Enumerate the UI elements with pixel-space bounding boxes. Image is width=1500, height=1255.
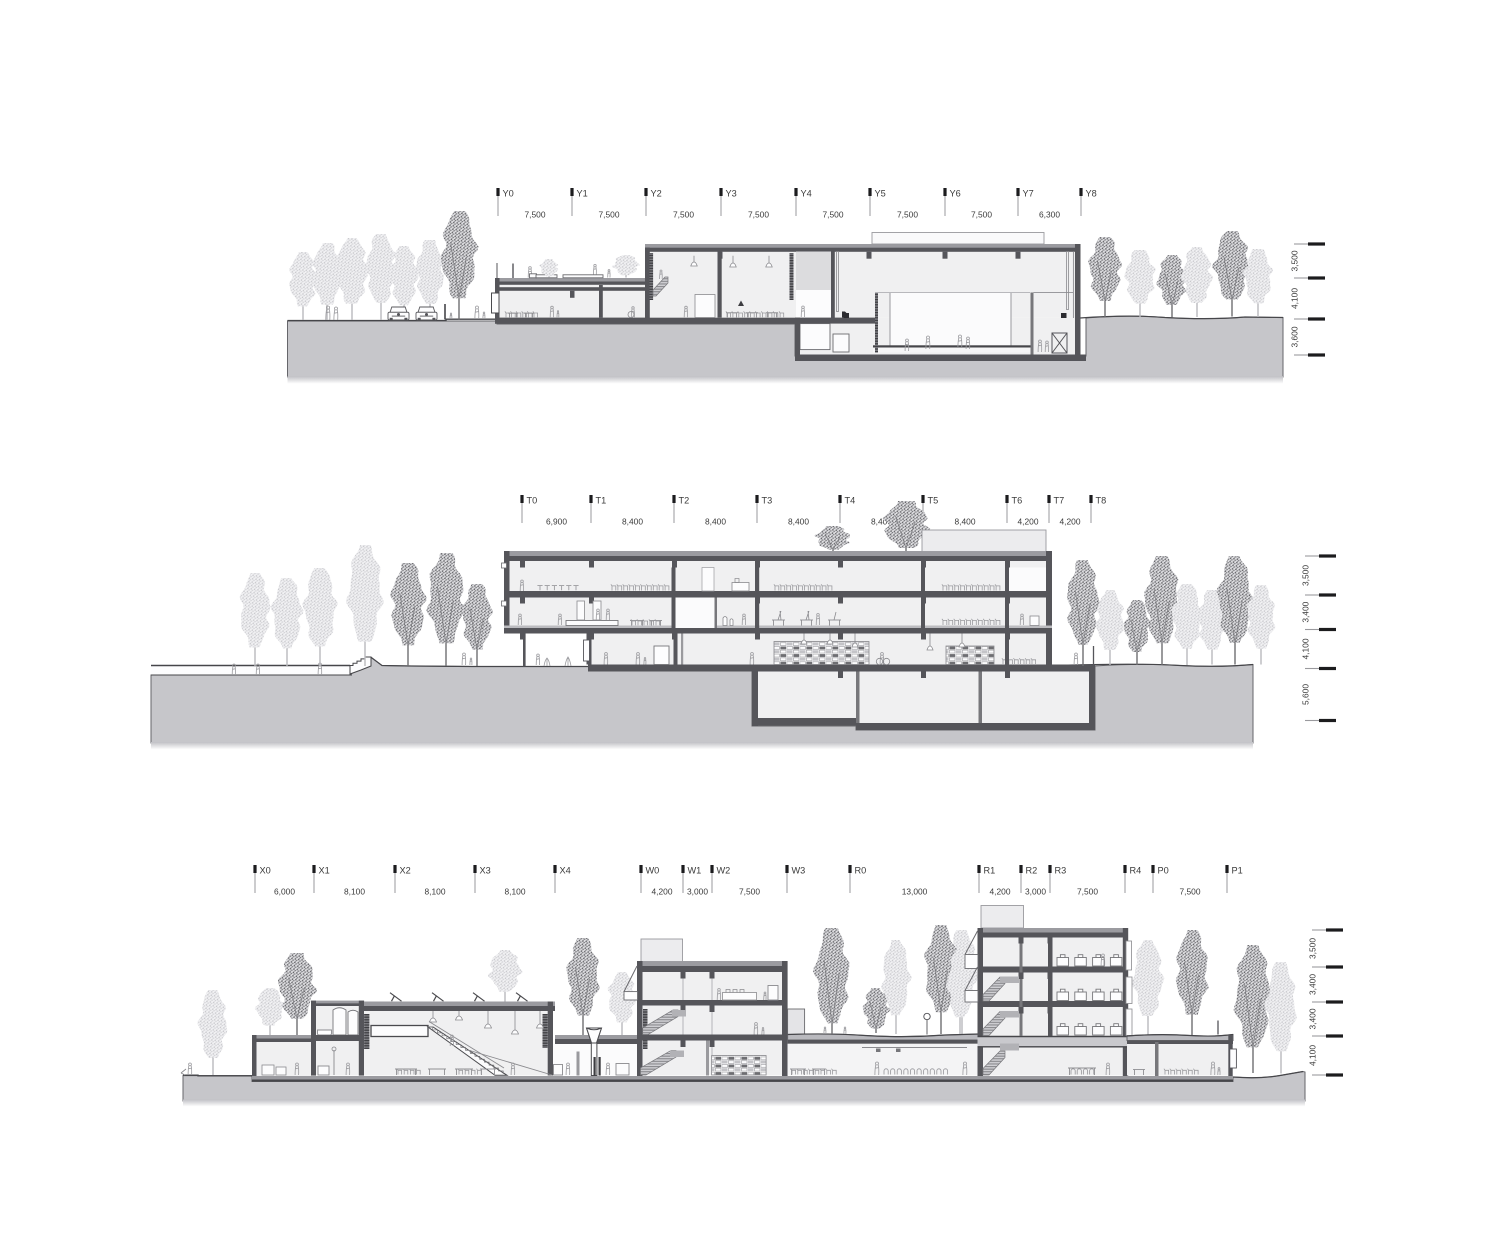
svg-text:R1: R1 xyxy=(984,866,996,876)
svg-text:3,500: 3,500 xyxy=(1290,250,1300,271)
svg-text:R3: R3 xyxy=(1055,866,1067,876)
svg-text:8,400: 8,400 xyxy=(622,517,643,527)
svg-text:3,400: 3,400 xyxy=(1301,601,1311,622)
svg-text:R4: R4 xyxy=(1130,866,1142,876)
svg-text:7,500: 7,500 xyxy=(748,210,769,220)
svg-text:8,400: 8,400 xyxy=(705,517,726,527)
svg-text:4,200: 4,200 xyxy=(1018,517,1039,527)
svg-text:Y2: Y2 xyxy=(651,189,662,199)
svg-text:6,300: 6,300 xyxy=(1039,210,1060,220)
svg-text:3,500: 3,500 xyxy=(1308,938,1318,959)
svg-text:3,400: 3,400 xyxy=(1308,1008,1318,1029)
svg-text:T3: T3 xyxy=(762,496,773,506)
svg-text:6,900: 6,900 xyxy=(546,517,567,527)
svg-text:4,200: 4,200 xyxy=(990,887,1011,897)
svg-text:X1: X1 xyxy=(319,866,330,876)
svg-text:T6: T6 xyxy=(1012,496,1023,506)
svg-text:T8: T8 xyxy=(1096,496,1107,506)
svg-text:13,000: 13,000 xyxy=(902,887,928,897)
svg-text:T1: T1 xyxy=(596,496,607,506)
svg-text:4,200: 4,200 xyxy=(1060,517,1081,527)
svg-text:7,500: 7,500 xyxy=(971,210,992,220)
svg-text:Y0: Y0 xyxy=(503,189,514,199)
svg-text:7,500: 7,500 xyxy=(823,210,844,220)
svg-text:Y1: Y1 xyxy=(577,189,588,199)
svg-text:7,500: 7,500 xyxy=(897,210,918,220)
svg-text:4,200: 4,200 xyxy=(652,887,673,897)
svg-text:Y4: Y4 xyxy=(801,189,812,199)
svg-text:X4: X4 xyxy=(560,866,571,876)
svg-text:3,000: 3,000 xyxy=(1025,887,1046,897)
svg-text:8,100: 8,100 xyxy=(425,887,446,897)
svg-text:X3: X3 xyxy=(480,866,491,876)
svg-text:3,600: 3,600 xyxy=(1290,326,1300,347)
svg-text:Y5: Y5 xyxy=(875,189,886,199)
svg-text:7,500: 7,500 xyxy=(525,210,546,220)
svg-text:3,500: 3,500 xyxy=(1301,565,1311,586)
svg-text:R0: R0 xyxy=(855,866,867,876)
svg-text:3,000: 3,000 xyxy=(687,887,708,897)
svg-text:W1: W1 xyxy=(688,866,702,876)
svg-text:4,100: 4,100 xyxy=(1301,638,1311,659)
svg-text:3,400: 3,400 xyxy=(1308,974,1318,995)
svg-text:P1: P1 xyxy=(1232,866,1243,876)
svg-text:8,100: 8,100 xyxy=(505,887,526,897)
svg-text:4,100: 4,100 xyxy=(1308,1045,1318,1066)
svg-text:7,500: 7,500 xyxy=(599,210,620,220)
svg-text:T7: T7 xyxy=(1054,496,1065,506)
svg-text:7,500: 7,500 xyxy=(1077,887,1098,897)
svg-text:Y7: Y7 xyxy=(1023,189,1034,199)
svg-text:P0: P0 xyxy=(1158,866,1169,876)
svg-text:8,100: 8,100 xyxy=(344,887,365,897)
svg-text:7,500: 7,500 xyxy=(739,887,760,897)
svg-text:R2: R2 xyxy=(1026,866,1038,876)
svg-text:4,100: 4,100 xyxy=(1290,288,1300,309)
svg-text:Y6: Y6 xyxy=(950,189,961,199)
svg-text:W3: W3 xyxy=(792,866,806,876)
svg-text:6,000: 6,000 xyxy=(274,887,295,897)
svg-text:W2: W2 xyxy=(717,866,731,876)
svg-text:Y3: Y3 xyxy=(726,189,737,199)
svg-text:W0: W0 xyxy=(646,866,660,876)
svg-text:7,500: 7,500 xyxy=(673,210,694,220)
svg-text:X2: X2 xyxy=(400,866,411,876)
svg-text:T4: T4 xyxy=(845,496,856,506)
svg-text:T5: T5 xyxy=(928,496,939,506)
svg-text:7,500: 7,500 xyxy=(1180,887,1201,897)
svg-text:8,400: 8,400 xyxy=(788,517,809,527)
svg-text:8,400: 8,400 xyxy=(955,517,976,527)
svg-text:X0: X0 xyxy=(260,866,271,876)
svg-text:T2: T2 xyxy=(679,496,690,506)
svg-text:5,600: 5,600 xyxy=(1301,684,1311,705)
svg-text:T0: T0 xyxy=(527,496,538,506)
svg-text:Y8: Y8 xyxy=(1086,189,1097,199)
